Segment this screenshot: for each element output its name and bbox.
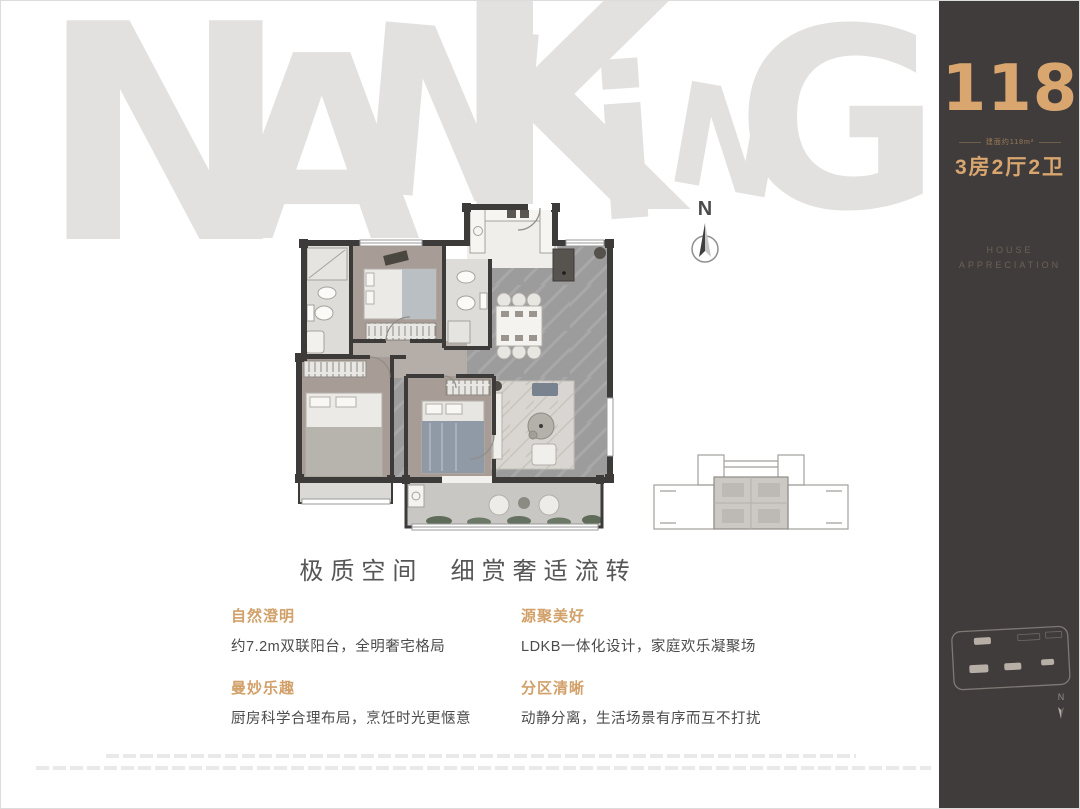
note-dash-left: [959, 142, 981, 143]
headline: 极质空间 细赏奢适流转: [161, 551, 775, 586]
building-key-plan: [646, 447, 856, 537]
feature-desc: 动静分离，生活场景有序而互不打扰: [521, 707, 851, 728]
poster-page: NANKiNG: [0, 0, 1080, 809]
disclaimer-line-1: [106, 754, 856, 758]
tagline-line2: APPRECIATION: [959, 260, 1061, 270]
feature-desc: LDKB一体化设计，家庭欢乐凝聚场: [521, 635, 851, 656]
feature-zoning: 分区清晰 动静分离，生活场景有序而互不打扰: [521, 677, 851, 728]
note-dash-right: [1039, 142, 1061, 143]
compass-needle-icon: [684, 219, 726, 271]
tagline-line1: HOUSE: [986, 245, 1033, 255]
mini-north-compass: N: [1053, 693, 1069, 724]
feature-title: 自然澄明: [231, 605, 561, 626]
area-note-text: 建面约118m²: [986, 137, 1034, 147]
feature-natural-light: 自然澄明 约7.2m双联阳台，全明奢宅格局: [231, 605, 561, 656]
area-note-row: 建面约118m²: [939, 137, 1080, 147]
mini-north-label: N: [1053, 693, 1069, 703]
feature-desc: 厨房科学合理布局，烹饪时光更惬意: [231, 707, 561, 728]
north-label: N: [684, 199, 726, 219]
watermark-letter: G: [736, 1, 939, 246]
mini-north-arrow-icon: [1057, 703, 1065, 719]
disclaimer-line-2: [36, 766, 931, 770]
floor-plan: [294, 193, 624, 541]
area-number: 118: [939, 57, 1080, 121]
watermark-letter: N: [39, 1, 290, 286]
unit-layout: 3房2厅2卫: [939, 151, 1080, 181]
north-compass: N: [684, 199, 726, 273]
tagline: HOUSE APPRECIATION: [939, 243, 1080, 274]
feature-ldkb: 源聚美好 LDKB一体化设计，家庭欢乐凝聚场: [521, 605, 851, 656]
feature-kitchen: 曼妙乐趣 厨房科学合理布局，烹饪时光更惬意: [231, 677, 561, 728]
watermark-letter: N: [658, 64, 798, 222]
feature-title: 源聚美好: [521, 605, 851, 626]
main-panel: NANKiNG: [1, 1, 939, 809]
feature-title: 分区清晰: [521, 677, 851, 698]
feature-title: 曼妙乐趣: [231, 677, 561, 698]
feature-desc: 约7.2m双联阳台，全明奢宅格局: [231, 635, 561, 656]
mini-site-plan: [947, 620, 1077, 702]
